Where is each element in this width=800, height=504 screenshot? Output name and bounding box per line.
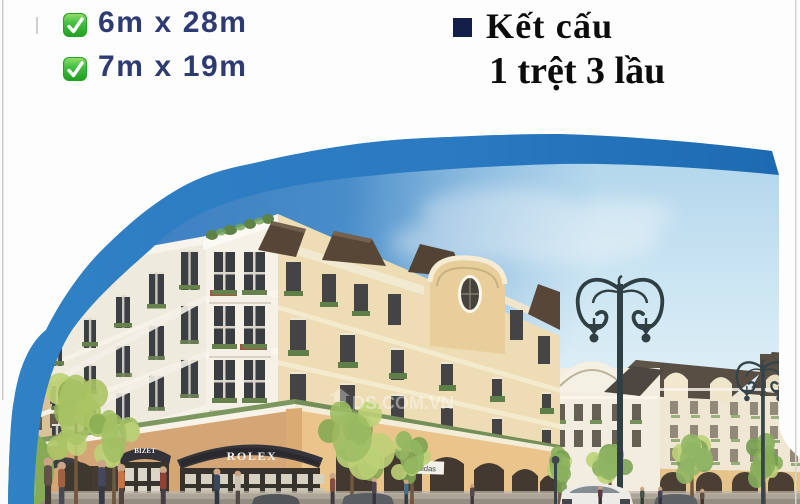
svg-text:DS.COM.VN: DS.COM.VN (352, 393, 454, 413)
